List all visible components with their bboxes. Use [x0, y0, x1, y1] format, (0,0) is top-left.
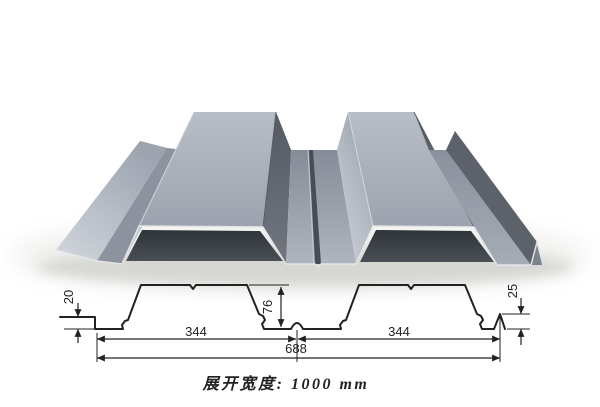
- dimension-span-left: 344: [97, 324, 296, 339]
- dim-total-span-label: 688: [285, 341, 307, 356]
- decking-3d-render: [0, 0, 600, 300]
- product-sheet: 344 344 688 20 76 25 展开宽: [0, 0, 600, 407]
- dim-span-right-label: 344: [388, 324, 410, 339]
- dimension-lip-height: 25: [502, 284, 530, 345]
- dimension-span-right: 344: [298, 324, 500, 339]
- dim-lip-height-label: 25: [505, 284, 520, 298]
- profile-outline: [60, 285, 505, 329]
- dimension-total-span: 688: [97, 341, 500, 358]
- dim-left-height-label: 20: [61, 290, 76, 304]
- unfolded-width-caption: 展开宽度: 1000 mm: [0, 370, 572, 394]
- cross-section-drawing: 344 344 688 20 76 25: [0, 270, 600, 370]
- dim-rib-height-label: 76: [260, 300, 275, 314]
- cavity-rib1: [126, 230, 283, 261]
- dim-span-left-label: 344: [185, 324, 207, 339]
